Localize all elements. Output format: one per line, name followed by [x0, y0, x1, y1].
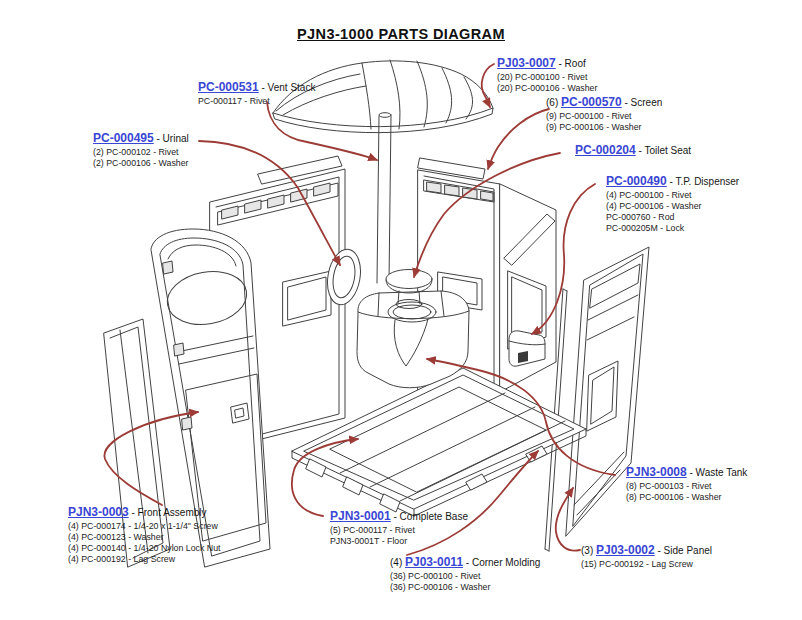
- screen-sub-part: (9) PC-000100 - Rivet: [546, 111, 662, 122]
- tp-dispenser-part-link[interactable]: PC-000490: [606, 174, 667, 188]
- waste-tank-part-name: - Waste Tank: [687, 467, 748, 478]
- side-panel-qty: (3): [581, 545, 596, 556]
- waste-tank-sub-part: (8) PC-000103 - Rivet: [626, 481, 747, 492]
- waste-tank-drawing: [357, 291, 469, 388]
- vent-stack-part-link[interactable]: PC-000531: [198, 80, 259, 94]
- corner-molding-part-name: - Corner Molding: [463, 557, 540, 568]
- label-complete-base: PJN3-0001 - Complete Base (5) PC-000117 …: [330, 509, 468, 547]
- urinal-sub-part: (2) PC-000102 - Rivet: [93, 147, 189, 158]
- front-assembly-part-link[interactable]: PJN3-0003: [68, 505, 129, 519]
- screen-leader: [488, 109, 549, 169]
- tp-dispenser-sub-part: (4) PC-000100 - Rivet: [606, 190, 739, 201]
- side-panel-part-link[interactable]: PJ03-0002: [596, 543, 655, 557]
- tp-dispenser-part-name: - T.P. Dispenser: [667, 176, 739, 187]
- complete-base-part-link[interactable]: PJN3-0001: [330, 509, 391, 523]
- roof-leader: [482, 64, 494, 107]
- label-waste-tank: PJN3-0008 - Waste Tank (8) PC-000103 - R…: [626, 465, 747, 503]
- urinal-part-name: - Urinal: [154, 133, 189, 144]
- screen-sub-part: (9) PC-000106 - Washer: [546, 122, 662, 133]
- vent-stack-part-name: - Vent Stack: [259, 82, 316, 93]
- tp-dispenser-sub-part: PC-000760 - Rod: [606, 212, 739, 223]
- urinal-part-link[interactable]: PC-000495: [93, 131, 154, 145]
- corner-molding-qty: (4): [390, 557, 405, 568]
- side-panel-part-name: - Side Panel: [655, 545, 712, 556]
- complete-base-sub-part: PJN3-0001T - Floor: [330, 536, 468, 547]
- screen-part-link[interactable]: PC-000570: [561, 95, 622, 109]
- roof-sub-part: (20) PC-000106 - Washer: [497, 83, 597, 94]
- toilet-seat-part-name: - Toilet Seat: [636, 145, 691, 156]
- tp-dispenser-sub-part: PC-000205M - Lock: [606, 223, 739, 234]
- label-roof: PJ03-0007 - Roof (20) PC-000100 - Rivet …: [497, 56, 597, 94]
- complete-base-part-name: - Complete Base: [391, 511, 468, 522]
- label-side-panel: (3) PJ03-0002 - Side Panel (15) PC-00019…: [581, 543, 712, 570]
- corner-molding-part-link[interactable]: PJ03-0011: [405, 555, 463, 569]
- roof-part-name: - Roof: [556, 58, 586, 69]
- front-assembly-sub-part: (4) PC-000140 - 1/4-20 Nylon Lock Nut: [68, 543, 221, 554]
- waste-tank-sub-part: (8) PC-000106 - Washer: [626, 492, 747, 503]
- side-panel-sub-part: (15) PC-000192 - Lag Screw: [581, 559, 712, 570]
- label-tp-dispenser: PC-000490 - T.P. Dispenser (4) PC-000100…: [606, 174, 739, 234]
- label-corner-molding: (4) PJ03-0011 - Corner Molding (36) PC-0…: [390, 555, 540, 593]
- urinal-sub-part: (2) PC-000106 - Washer: [93, 158, 189, 169]
- label-front-assembly: PJN3-0003 - Front Assembly (4) PC-000174…: [68, 505, 221, 565]
- vent-stack-drawing: [377, 113, 391, 283]
- front-assembly-sub-part: (4) PC-000174 - 1/4-20 x 1-1/4" Screw: [68, 521, 221, 532]
- waste-tank-part-link[interactable]: PJN3-0008: [626, 465, 687, 479]
- corner-molding-sub-part: (36) PC-000100 - Rivet: [390, 571, 540, 582]
- screen-part-name: - Screen: [622, 97, 663, 108]
- parts-diagram-page: PJN3-1000 PARTS DIAGRAM: [0, 0, 802, 620]
- roof-part-link[interactable]: PJ03-0007: [497, 56, 556, 70]
- label-screen: (6) PC-000570 - Screen (9) PC-000100 - R…: [546, 95, 662, 133]
- front-assembly-sub-part: (4) PC-000123 - Washer: [68, 532, 221, 543]
- label-toilet-seat: PC-000204 - Toilet Seat: [575, 143, 691, 159]
- front-assembly-sub-part: (4) PC-000192 - Lag Screw: [68, 554, 221, 565]
- front-assembly-part-name: - Front Assembly: [129, 507, 207, 518]
- corner-molding-sub-part: (36) PC-000106 - Washer: [390, 582, 540, 593]
- toilet-seat-part-link[interactable]: PC-000204: [575, 143, 636, 157]
- tp-dispenser-sub-part: (4) PC-000106 - Washer: [606, 201, 739, 212]
- label-urinal: PC-000495 - Urinal (2) PC-000102 - Rivet…: [93, 131, 189, 169]
- complete-base-sub-part: (5) PC-000117 - Rivet: [330, 525, 468, 536]
- screen-qty: (6): [546, 97, 561, 108]
- vent-stack-sub-part: PC-000117 - Rivet: [198, 96, 315, 107]
- label-vent-stack: PC-000531 - Vent Stack PC-000117 - Rivet: [198, 80, 315, 107]
- roof-sub-part: (20) PC-000100 - Rivet: [497, 72, 597, 83]
